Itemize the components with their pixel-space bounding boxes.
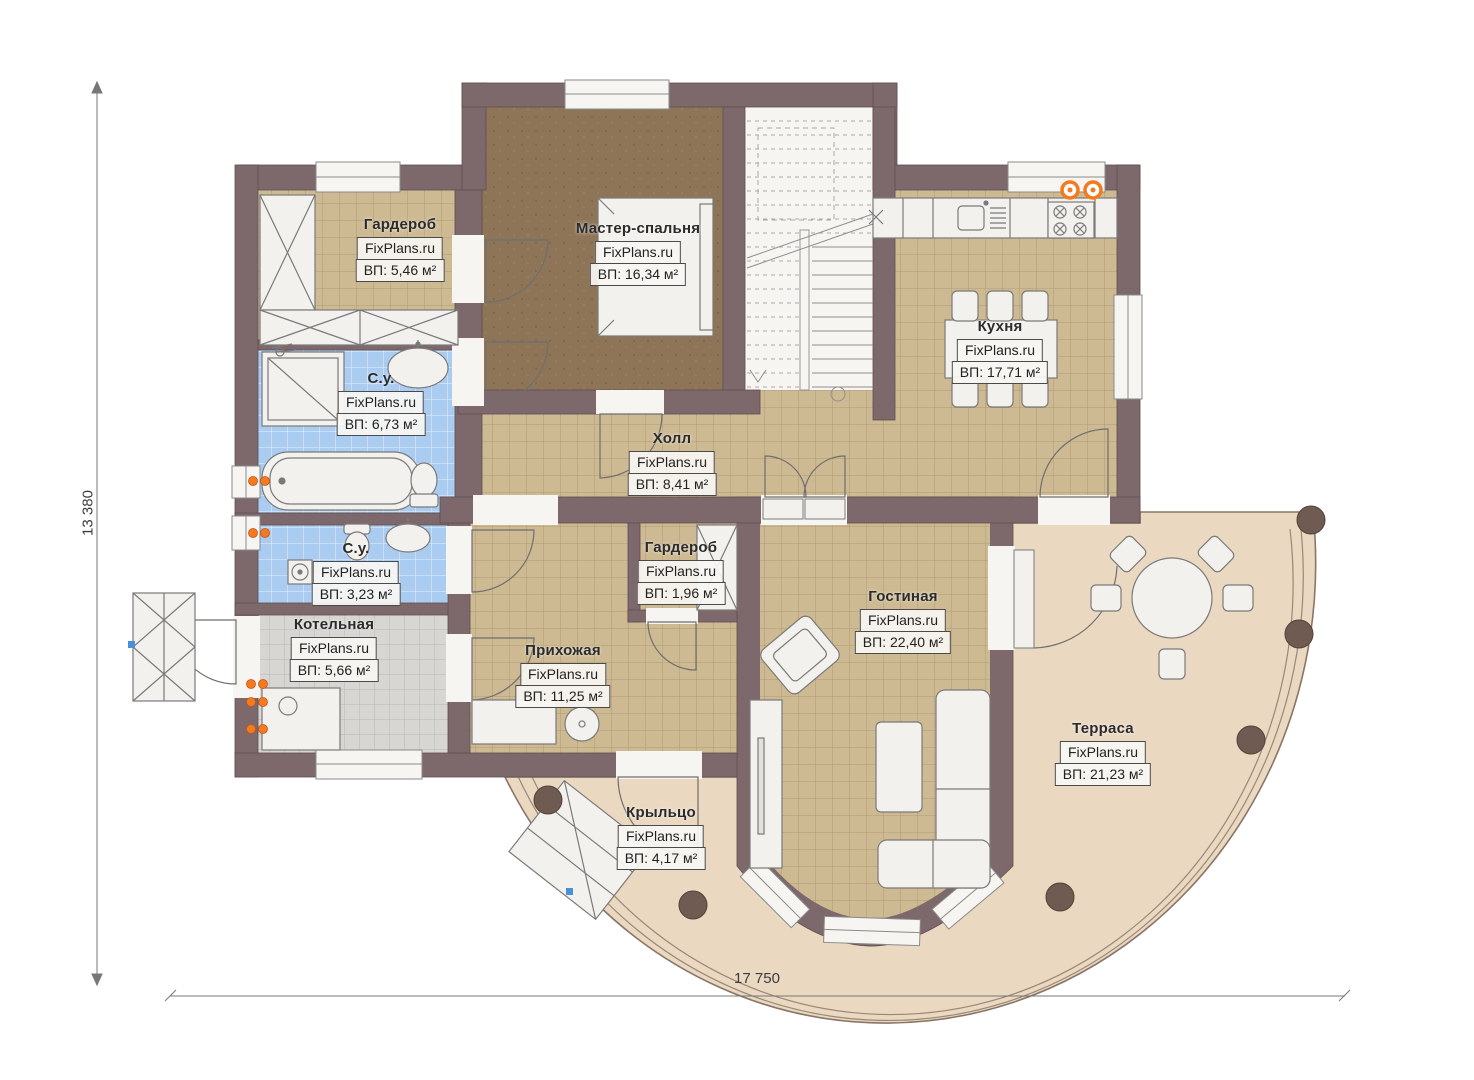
room-watermark: FixPlans.ru [357, 237, 443, 260]
window-master-bedroom [565, 80, 669, 109]
room-name: Котельная [290, 616, 379, 634]
room-area: ВП: 21,23 м² [1055, 763, 1151, 786]
room-area: ВП: 5,46 м² [356, 259, 445, 282]
room-watermark: FixPlans.ru [291, 637, 377, 660]
room-area: ВП: 3,23 м² [312, 583, 401, 606]
shower [262, 344, 344, 426]
floor-plan-drawing [0, 0, 1474, 1080]
room-watermark: FixPlans.ru [957, 339, 1043, 362]
room-label-entrance-hall: Прихожая FixPlans.ru ВП: 11,25 м² [515, 642, 610, 708]
room-name: Терраса [1055, 720, 1151, 738]
room-label-living-room: Гостиная FixPlans.ru ВП: 22,40 м² [855, 588, 951, 654]
room-label-boiler-room: Котельная FixPlans.ru ВП: 5,66 м² [290, 616, 379, 682]
window-boiler-bottom [316, 750, 422, 779]
room-label-bathroom-2: С.у. FixPlans.ru ВП: 3,23 м² [312, 540, 401, 606]
room-label-hall: Холл FixPlans.ru ВП: 8,41 м² [628, 430, 717, 496]
bathtub [262, 452, 420, 510]
room-name: Крыльцо [617, 804, 706, 822]
room-name: Гардероб [637, 539, 726, 557]
room-watermark: FixPlans.ru [618, 825, 704, 848]
window-wardrobe-1 [316, 162, 400, 192]
room-area: ВП: 8,41 м² [628, 473, 717, 496]
room-label-master-bedroom: Мастер-спальня FixPlans.ru ВП: 16,34 м² [576, 220, 700, 286]
room-watermark: FixPlans.ru [638, 560, 724, 583]
room-name: Гостиная [855, 588, 951, 606]
room-label-wardrobe-1: Гардероб FixPlans.ru ВП: 5,46 м² [356, 216, 445, 282]
room-watermark: FixPlans.ru [595, 241, 681, 264]
room-area: ВП: 5,66 м² [290, 659, 379, 682]
room-label-porch: Крыльцо FixPlans.ru ВП: 4,17 м² [617, 804, 706, 870]
room-watermark: FixPlans.ru [313, 561, 399, 584]
terrace-table [1132, 558, 1212, 638]
dimension-height: 13 380 [80, 490, 97, 536]
pouf [565, 707, 599, 741]
room-name: С.у. [337, 370, 426, 388]
room-name: Гардероб [356, 216, 445, 234]
stove [1048, 202, 1094, 238]
room-area: ВП: 16,34 м² [590, 263, 686, 286]
room-name: Мастер-спальня [576, 220, 700, 238]
floor-plan-page: Гардероб FixPlans.ru ВП: 5,46 м² Мастер-… [0, 0, 1474, 1080]
room-area: ВП: 22,40 м² [855, 631, 951, 654]
room-name: Прихожая [515, 642, 610, 660]
room-watermark: FixPlans.ru [520, 663, 606, 686]
room-label-kitchen: Кухня FixPlans.ru ВП: 17,71 м² [952, 318, 1048, 384]
tv-unit [750, 700, 782, 868]
room-watermark: FixPlans.ru [338, 391, 424, 414]
window-living-curve-2 [824, 916, 921, 945]
coffee-table [876, 722, 922, 812]
room-label-wardrobe-2: Гардероб FixPlans.ru ВП: 1,96 м² [637, 539, 726, 605]
room-area: ВП: 11,25 м² [515, 685, 610, 708]
kitchen-counter [869, 198, 1117, 238]
room-area: ВП: 6,73 м² [337, 413, 426, 436]
room-watermark: FixPlans.ru [629, 451, 715, 474]
room-label-terrace: Терраса FixPlans.ru ВП: 21,23 м² [1055, 720, 1151, 786]
washing-machine [288, 560, 312, 584]
room-label-bathroom-1: С.у. FixPlans.ru ВП: 6,73 м² [337, 370, 426, 436]
door-leaf-right [805, 499, 845, 519]
side-steps [133, 593, 195, 701]
room-area: ВП: 4,17 м² [617, 847, 706, 870]
dimension-width: 17 750 [734, 970, 780, 987]
room-name: Холл [628, 430, 717, 448]
window-kitchen-right [1114, 295, 1142, 399]
boiler-unit [262, 688, 340, 750]
door-leaf-left [763, 499, 803, 519]
toilet-bathroom-1 [410, 463, 438, 507]
room-name: Кухня [952, 318, 1048, 336]
room-area: ВП: 17,71 м² [952, 361, 1048, 384]
room-name: С.у. [312, 540, 401, 558]
room-watermark: FixPlans.ru [1060, 741, 1146, 764]
door-leaf-terrace [1014, 550, 1034, 648]
room-area: ВП: 1,96 м² [637, 582, 726, 605]
room-watermark: FixPlans.ru [860, 609, 946, 632]
